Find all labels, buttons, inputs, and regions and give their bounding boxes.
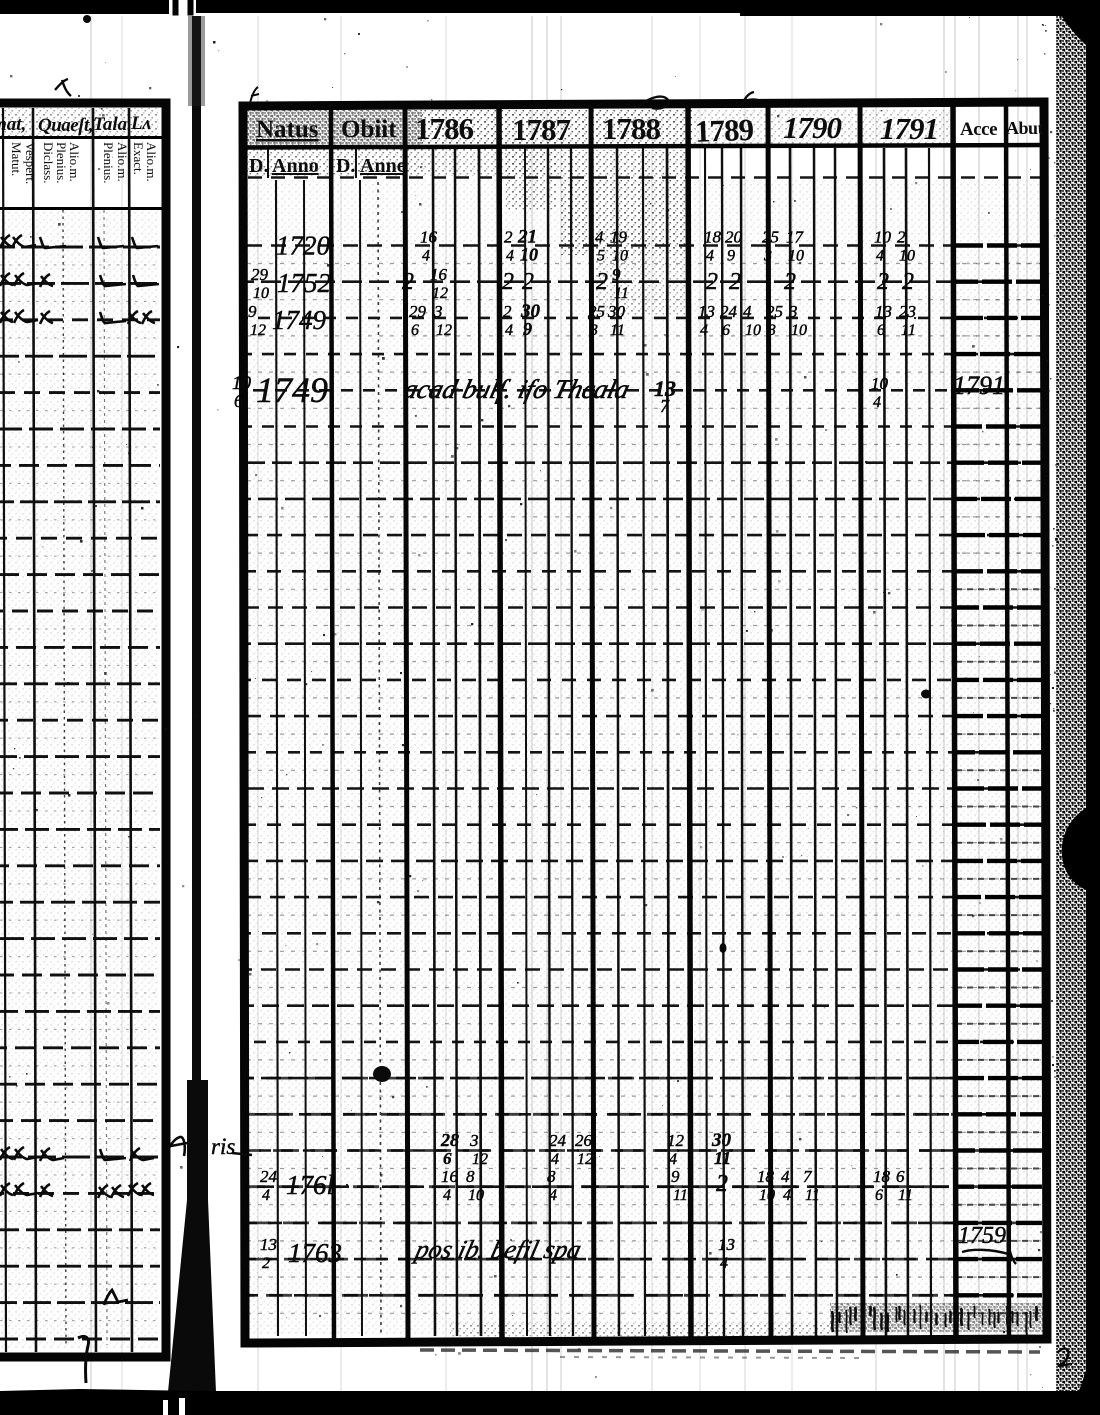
svg-text:Tala: Tala (93, 114, 128, 135)
svg-text:2: 2 (784, 269, 796, 295)
svg-text:3: 3 (767, 322, 776, 339)
svg-text:10: 10 (612, 248, 628, 265)
svg-text:8: 8 (547, 1167, 556, 1186)
svg-text:4: 4 (443, 1187, 451, 1204)
svg-text:18: 18 (704, 228, 722, 247)
svg-text:4: 4 (551, 1151, 559, 1168)
svg-text:ris: ris (211, 1134, 235, 1159)
svg-text:2: 2 (503, 302, 512, 321)
svg-text:12: 12 (250, 322, 266, 339)
svg-text:11: 11 (614, 285, 629, 302)
svg-text:10: 10 (788, 248, 804, 265)
svg-text:Obiit: Obiit (341, 116, 397, 143)
svg-text:6: 6 (411, 322, 419, 339)
svg-text:11: 11 (805, 1187, 820, 1204)
svg-text:1791: 1791 (880, 111, 938, 146)
svg-text:16: 16 (420, 228, 438, 247)
svg-text:4: 4 (549, 1187, 557, 1204)
svg-text:6: 6 (234, 391, 243, 411)
svg-text:12: 12 (436, 322, 452, 339)
svg-text:2: 2 (729, 269, 741, 295)
svg-text:2: 2 (897, 228, 906, 247)
svg-text:1787: 1787 (512, 112, 571, 147)
svg-text:4: 4 (700, 322, 708, 339)
svg-text:9: 9 (727, 248, 735, 265)
svg-text:Alio.m.: Alio.m. (67, 142, 82, 182)
svg-text:2: 2 (504, 228, 513, 247)
svg-text:4: 4 (781, 1167, 790, 1186)
svg-text:2: 2 (522, 269, 534, 295)
svg-text:1749: 1749 (272, 305, 327, 335)
svg-text:18: 18 (873, 1167, 891, 1186)
svg-text:10: 10 (520, 245, 538, 265)
svg-text:Exact.: Exact. (131, 142, 146, 175)
svg-text:2: 2 (716, 1171, 728, 1197)
svg-text:3: 3 (763, 248, 772, 265)
svg-text:3: 3 (469, 1131, 479, 1150)
svg-text:25: 25 (766, 302, 783, 321)
svg-text:5: 5 (597, 248, 605, 265)
svg-text:9: 9 (671, 1167, 680, 1186)
svg-text:4: 4 (783, 1187, 791, 1204)
svg-text:1786: 1786 (415, 111, 474, 146)
svg-text:8: 8 (466, 1167, 475, 1186)
svg-text:4: 4 (506, 248, 514, 265)
svg-text:Acce: Acce (960, 119, 997, 140)
svg-text:1789: 1789 (694, 112, 754, 149)
svg-text:25: 25 (762, 228, 779, 247)
svg-text:D.: D. (249, 155, 268, 177)
svg-text:mat,: mat, (0, 114, 26, 135)
svg-text:11: 11 (901, 322, 916, 339)
svg-text:29: 29 (251, 265, 269, 284)
svg-text:4: 4 (720, 1255, 728, 1272)
svg-text:12: 12 (472, 1151, 488, 1168)
svg-text:24: 24 (549, 1131, 567, 1150)
svg-text:4: 4 (595, 228, 604, 247)
svg-text:1749: 1749 (256, 370, 328, 410)
svg-text:23: 23 (899, 302, 916, 321)
svg-text:11: 11 (898, 1187, 913, 1204)
svg-text:3: 3 (589, 322, 598, 339)
svg-text:12: 12 (667, 1131, 685, 1150)
svg-text:9: 9 (248, 302, 257, 321)
svg-text:28: 28 (440, 1130, 459, 1150)
svg-text:4: 4 (876, 248, 884, 265)
svg-text:6: 6 (877, 322, 885, 339)
svg-text:acad bulſ. ifo Thcala: acad bulſ. ifo Thcala (401, 374, 633, 404)
svg-text:4: 4 (262, 1187, 270, 1204)
svg-text:1759: 1759 (958, 1223, 1006, 1249)
svg-text:2: 2 (902, 269, 914, 295)
svg-text:10: 10 (253, 285, 269, 302)
svg-text:29: 29 (409, 302, 427, 321)
svg-text:16: 16 (441, 1167, 459, 1186)
svg-text:Alio.m.: Alio.m. (115, 142, 130, 182)
svg-text:12: 12 (577, 1151, 593, 1168)
svg-text:9: 9 (523, 319, 532, 339)
svg-text:1791: 1791 (953, 371, 1005, 400)
svg-text:11: 11 (610, 322, 625, 339)
svg-text:12: 12 (432, 285, 448, 302)
svg-text:3: 3 (788, 302, 798, 321)
svg-text:13: 13 (698, 302, 715, 321)
svg-text:10: 10 (745, 322, 761, 339)
svg-text:13: 13 (260, 1235, 277, 1254)
svg-text:16: 16 (430, 265, 448, 284)
svg-text:1720: 1720 (276, 231, 331, 261)
svg-text:19: 19 (610, 228, 628, 247)
svg-text:Diclass.: Diclass. (41, 142, 56, 184)
svg-text:3: 3 (433, 302, 443, 321)
svg-text:4: 4 (743, 302, 752, 321)
svg-text:7: 7 (660, 396, 670, 416)
svg-text:17: 17 (786, 228, 805, 247)
svg-text:13: 13 (718, 1235, 735, 1254)
svg-text:Anne: Anne (360, 155, 406, 177)
svg-text:2: 2 (596, 269, 608, 295)
svg-text:24: 24 (720, 302, 738, 321)
svg-text:Lʌ: Lʌ (130, 113, 152, 134)
svg-text:10: 10 (468, 1187, 484, 1204)
svg-text:2: 2 (706, 269, 718, 295)
svg-text:4: 4 (505, 322, 513, 339)
svg-text:2: 2 (502, 269, 514, 295)
svg-text:1790: 1790 (783, 110, 842, 145)
svg-text:Quaeſt,: Quaeſt, (38, 115, 93, 136)
svg-text:11: 11 (673, 1187, 688, 1204)
svg-text:Vespert.: Vespert. (23, 142, 38, 184)
svg-text:Matut.: Matut. (9, 142, 24, 176)
svg-text:1752: 1752 (277, 268, 331, 298)
svg-text:4: 4 (873, 394, 881, 411)
svg-text:2: 2 (877, 269, 889, 295)
svg-text:pos ib. befil spa: pos ib. befil spa (411, 1234, 585, 1264)
svg-text:6: 6 (896, 1167, 905, 1186)
svg-text:13: 13 (875, 302, 892, 321)
svg-text:Natus: Natus (256, 116, 319, 143)
svg-text:6: 6 (722, 322, 730, 339)
svg-text:10: 10 (899, 248, 915, 265)
svg-text:9: 9 (612, 265, 621, 284)
svg-text:Abut: Abut (1006, 118, 1044, 138)
svg-text:20: 20 (725, 228, 743, 247)
svg-text:1763: 1763 (288, 1238, 342, 1268)
svg-text:10: 10 (759, 1187, 775, 1204)
svg-text:Alio.m.: Alio.m. (144, 142, 159, 182)
svg-text:4: 4 (669, 1151, 677, 1168)
svg-text:2: 2 (262, 1255, 270, 1272)
svg-text:30: 30 (607, 302, 626, 321)
svg-text:Anno: Anno (272, 155, 319, 177)
svg-text:4: 4 (422, 248, 430, 265)
svg-text:Plenius.: Plenius. (101, 142, 116, 184)
svg-text:D.: D. (336, 155, 355, 177)
svg-text:10: 10 (871, 374, 889, 393)
svg-text:Plenius.: Plenius. (54, 142, 69, 184)
svg-text:25: 25 (588, 302, 605, 321)
svg-text:10: 10 (791, 322, 807, 339)
svg-text:2: 2 (402, 269, 414, 295)
svg-text:10: 10 (874, 228, 892, 247)
svg-text:4: 4 (706, 248, 714, 265)
svg-text:11: 11 (714, 1148, 731, 1168)
svg-text:26: 26 (575, 1131, 593, 1150)
svg-text:24: 24 (260, 1167, 278, 1186)
svg-text:176l: 176l (286, 1170, 334, 1200)
svg-text:6: 6 (875, 1187, 883, 1204)
svg-text:18: 18 (757, 1167, 775, 1186)
svg-text:1788: 1788 (602, 111, 661, 146)
svg-text:6: 6 (443, 1149, 452, 1168)
